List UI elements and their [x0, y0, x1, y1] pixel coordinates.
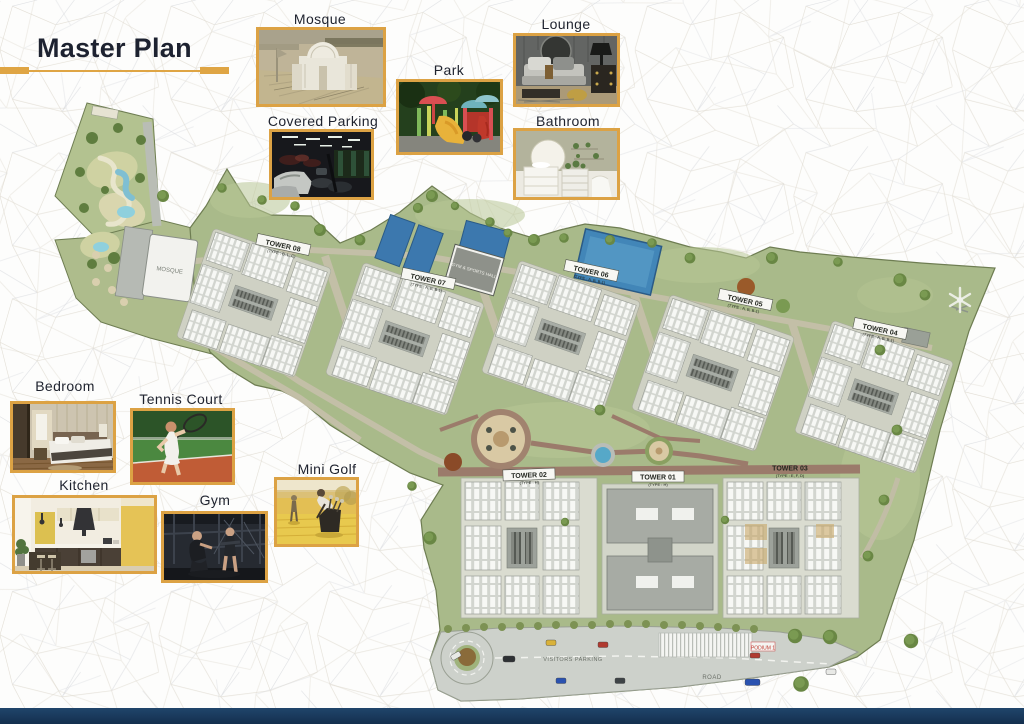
svg-text:(TYPE : H): (TYPE : H) [648, 482, 668, 487]
svg-text:(TYPE : E, F, D): (TYPE : E, F, D) [776, 473, 805, 478]
svg-text:TOWER 02: TOWER 02 [511, 472, 547, 480]
svg-text:(TYPE : H): (TYPE : H) [520, 480, 540, 486]
svg-text:VISITORS PARKING: VISITORS PARKING [543, 657, 602, 663]
svg-text:TOWER 01: TOWER 01 [640, 475, 676, 482]
svg-text:ROAD: ROAD [702, 675, 722, 681]
svg-text:TOWER 03: TOWER 03 [772, 466, 808, 473]
svg-text:PODIUM 1: PODIUM 1 [751, 646, 775, 652]
